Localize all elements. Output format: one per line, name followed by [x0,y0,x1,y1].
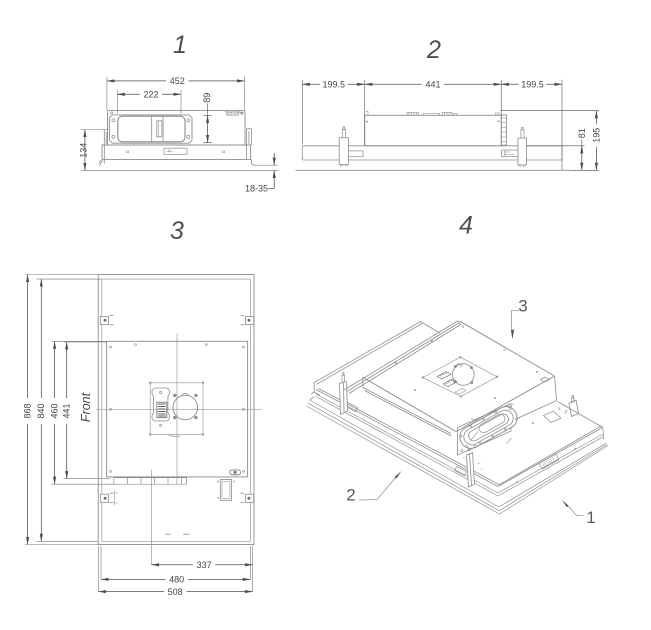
svg-text:3: 3 [170,217,184,245]
svg-text:2: 2 [346,486,355,505]
svg-text:195: 195 [591,128,601,143]
svg-text:89: 89 [202,93,212,103]
svg-text:134: 134 [78,143,88,158]
svg-text:199.5: 199.5 [323,79,346,89]
svg-text:337: 337 [197,560,212,570]
svg-text:1: 1 [586,508,595,527]
svg-text:2: 2 [426,36,441,64]
svg-text:441: 441 [425,79,440,89]
svg-text:508: 508 [168,587,183,597]
svg-text:452: 452 [170,76,185,86]
svg-text:460: 460 [49,403,59,418]
svg-text:4: 4 [459,212,473,240]
svg-text:1: 1 [173,31,187,59]
svg-text:81: 81 [577,128,587,138]
svg-text:3: 3 [518,297,527,316]
svg-text:840: 840 [36,403,46,418]
svg-text:868: 868 [22,403,32,418]
svg-text:Front: Front [79,392,93,422]
svg-text:199.5: 199.5 [521,79,544,89]
svg-text:222: 222 [143,89,158,99]
svg-text:480: 480 [169,575,184,585]
svg-text:441: 441 [61,403,71,418]
svg-text:18-35: 18-35 [245,184,268,194]
